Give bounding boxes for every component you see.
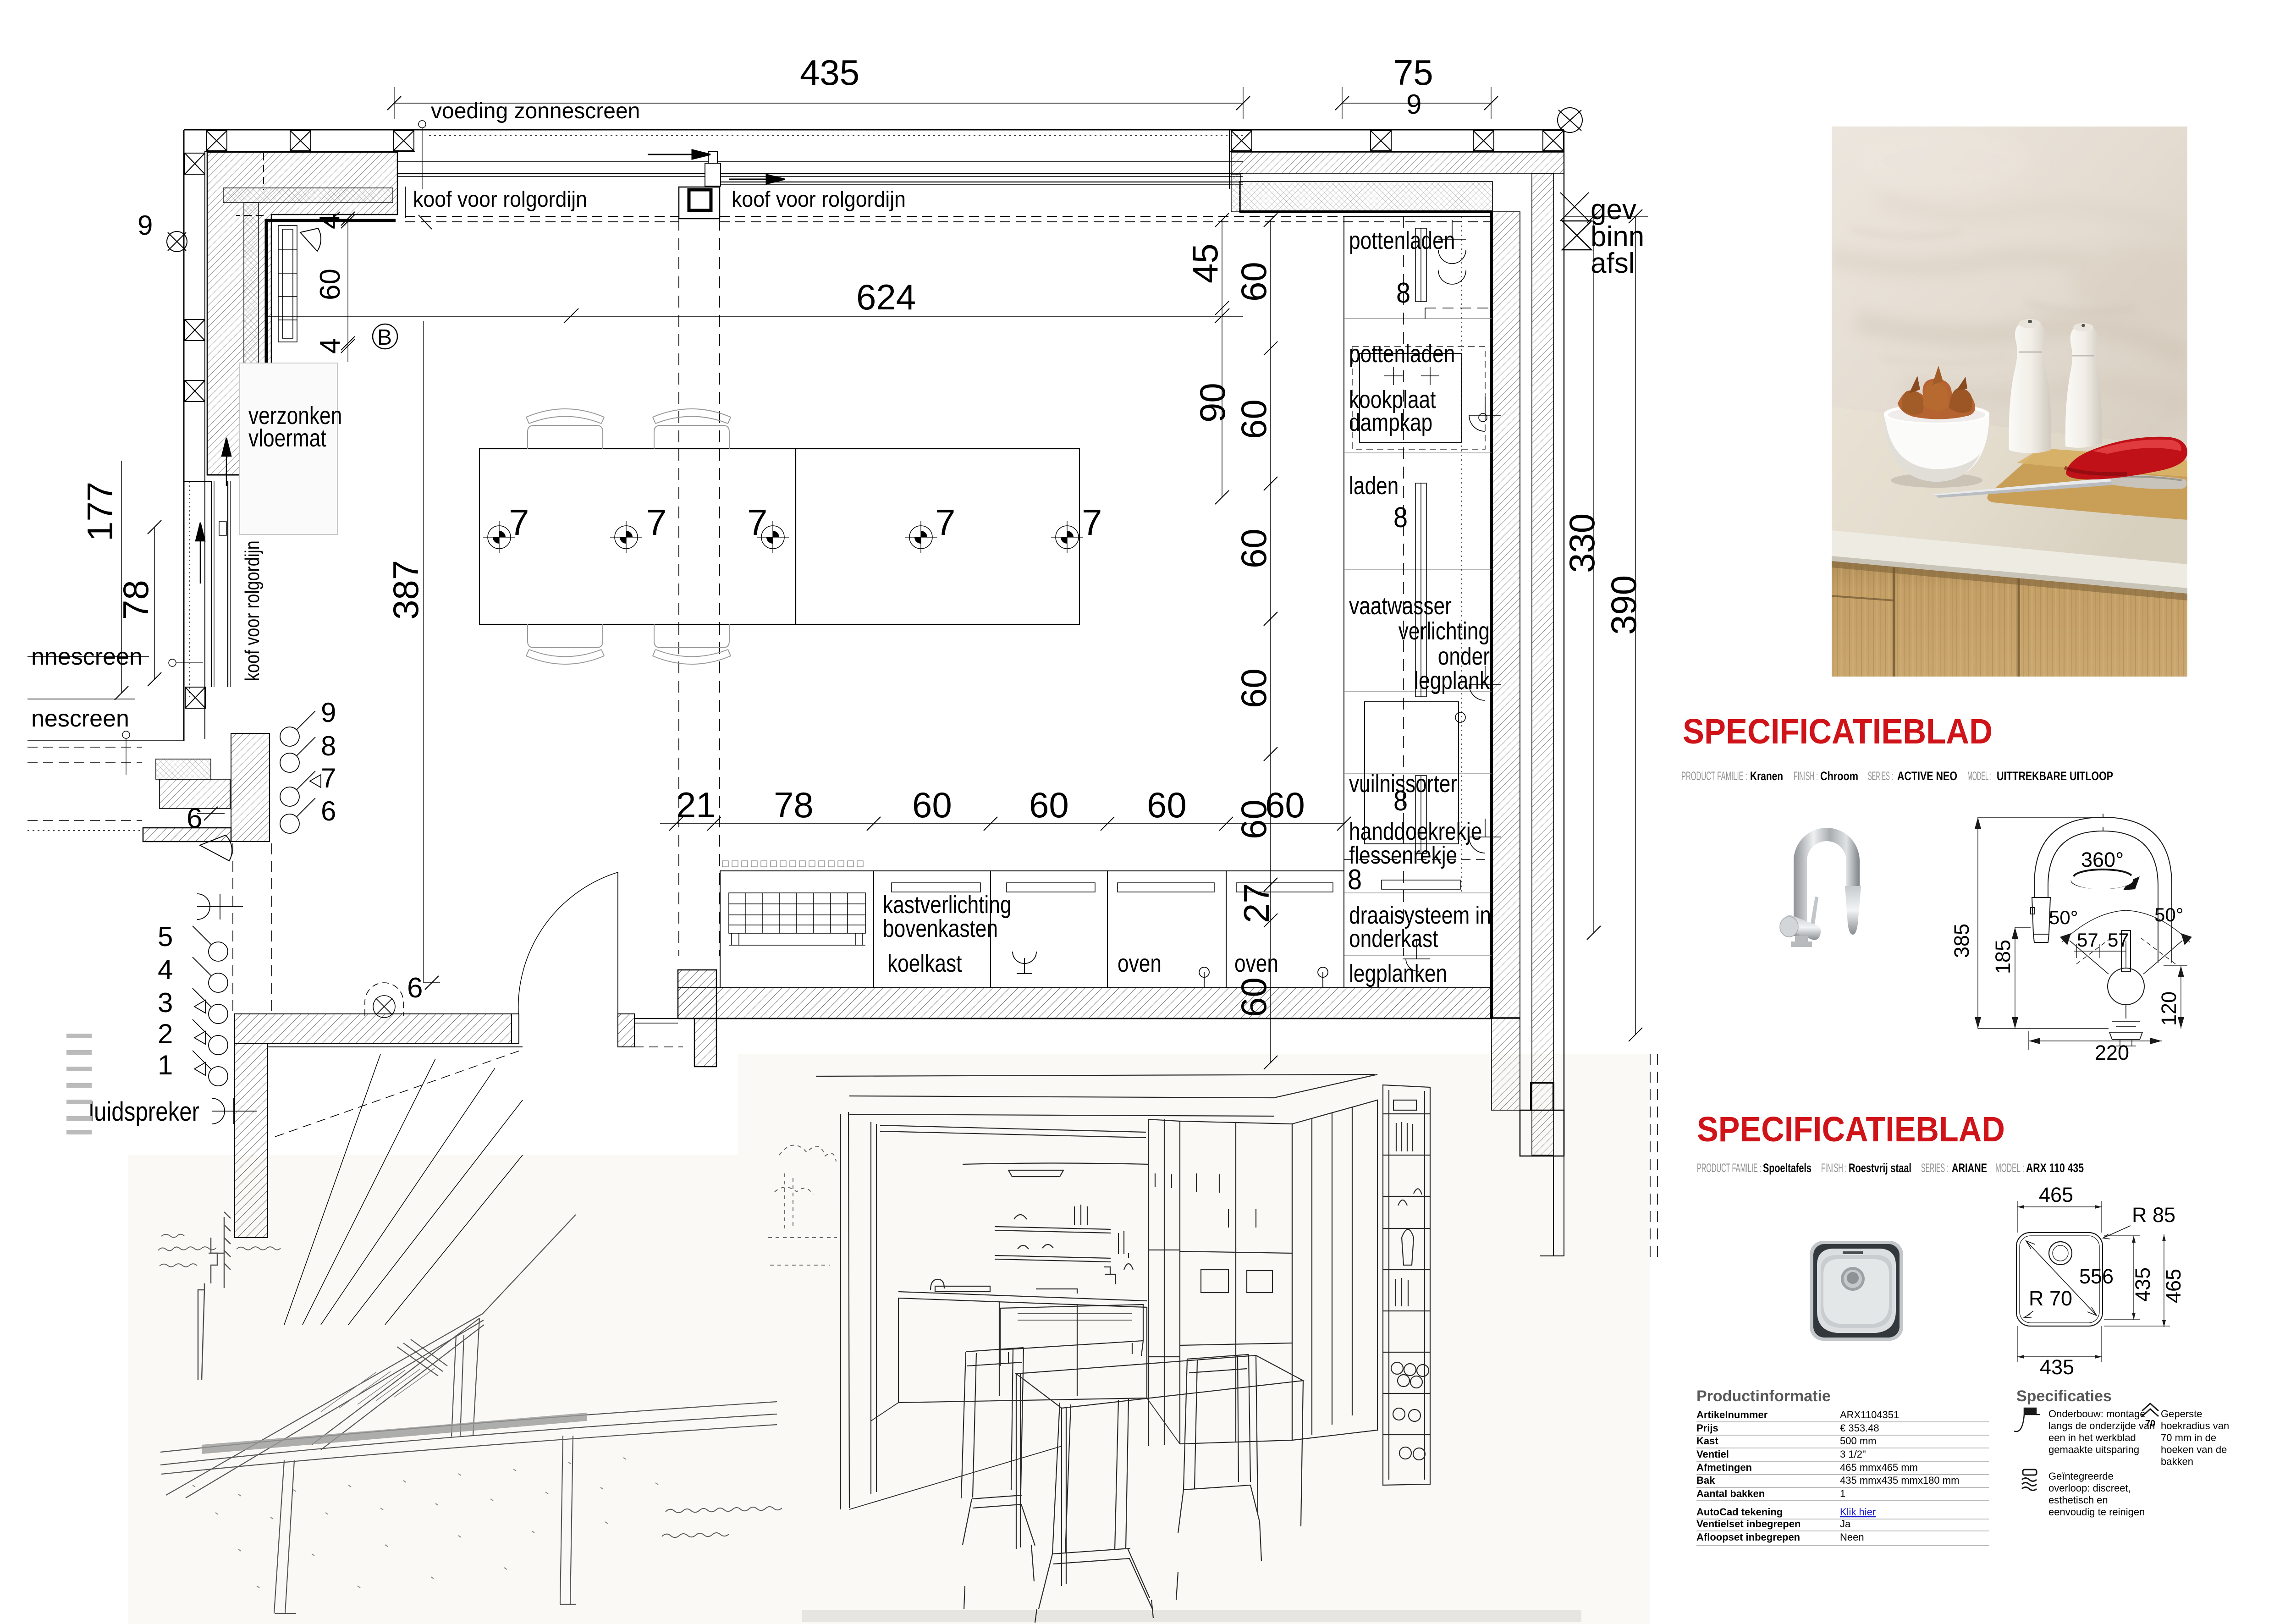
svg-text:330: 330 — [1562, 513, 1602, 573]
svg-text:57: 57 — [2077, 929, 2098, 951]
svg-text:2: 2 — [158, 1018, 173, 1049]
svg-text:Chroom: Chroom — [1820, 769, 1858, 783]
svg-text:1: 1 — [1840, 1488, 1845, 1499]
svg-text:dampkap: dampkap — [1349, 409, 1432, 436]
svg-text:220: 220 — [2095, 1041, 2129, 1064]
svg-text:60: 60 — [912, 785, 952, 825]
svg-text:Roestvrij staal: Roestvrij staal — [1849, 1161, 1911, 1175]
svg-text:SPECIFICATIEBLAD: SPECIFICATIEBLAD — [1697, 1110, 2005, 1149]
svg-text:8: 8 — [1348, 864, 1362, 895]
svg-text:overloop: discreet,: overloop: discreet, — [2048, 1482, 2131, 1494]
svg-text:8: 8 — [1393, 502, 1408, 533]
svg-text:1: 1 — [158, 1050, 173, 1080]
svg-text:legplank: legplank — [1414, 667, 1490, 694]
svg-text:7: 7 — [1082, 502, 1102, 543]
svg-text:3: 3 — [158, 987, 173, 1018]
svg-text:AutoCad tekening: AutoCad tekening — [1696, 1506, 1783, 1518]
svg-text:5: 5 — [158, 921, 173, 952]
svg-text:B: B — [377, 325, 392, 350]
svg-text:120: 120 — [2157, 991, 2180, 1026]
svg-text:pottenladen: pottenladen — [1349, 227, 1455, 254]
svg-text:9: 9 — [1406, 89, 1421, 120]
svg-text:385: 385 — [1950, 924, 1973, 958]
svg-text:60: 60 — [1233, 668, 1274, 708]
svg-text:Neen: Neen — [1840, 1531, 1864, 1543]
svg-text:70: 70 — [2145, 1419, 2155, 1429]
svg-text:7: 7 — [321, 763, 336, 793]
svg-text:ARIANE: ARIANE — [1952, 1161, 1987, 1175]
svg-text:435: 435 — [2040, 1355, 2074, 1379]
svg-text:koof voor rolgordijn: koof voor rolgordijn — [413, 187, 587, 212]
svg-text:90: 90 — [1192, 383, 1233, 423]
svg-text:8: 8 — [1396, 277, 1410, 308]
svg-text:185: 185 — [1991, 940, 2015, 974]
svg-text:465 mmx465 mm: 465 mmx465 mm — [1840, 1462, 1918, 1473]
svg-text:Productinformatie: Productinformatie — [1696, 1387, 1831, 1405]
svg-text:vloermat: vloermat — [248, 424, 326, 452]
svg-text:4: 4 — [314, 338, 346, 354]
svg-text:177: 177 — [80, 482, 120, 541]
svg-text:50°: 50° — [2049, 907, 2078, 928]
svg-text:435: 435 — [800, 52, 859, 93]
svg-text:387: 387 — [385, 560, 426, 620]
svg-text:R 70: R 70 — [2029, 1287, 2072, 1310]
svg-text:koof voor rolgordijn: koof voor rolgordijn — [241, 540, 264, 681]
svg-text:ACTIVE NEO: ACTIVE NEO — [1897, 769, 1957, 783]
svg-text:Artikelnummer: Artikelnummer — [1696, 1409, 1768, 1420]
svg-text:4: 4 — [158, 954, 173, 985]
svg-text:Kast: Kast — [1696, 1435, 1718, 1447]
svg-text:MODEL :: MODEL : — [1967, 769, 1992, 783]
svg-text:PRODUCT FAMILIE :: PRODUCT FAMILIE : — [1697, 1161, 1762, 1175]
svg-text:bovenkasten: bovenkasten — [883, 915, 998, 942]
svg-text:60: 60 — [1233, 262, 1274, 302]
svg-text:8: 8 — [1393, 785, 1408, 816]
svg-text:voeding zonnescreen: voeding zonnescreen — [431, 99, 640, 123]
svg-text:45: 45 — [1185, 243, 1225, 283]
svg-text:70 mm in de: 70 mm in de — [2161, 1432, 2216, 1443]
svg-text:Geperste: Geperste — [2161, 1408, 2202, 1420]
svg-text:500 mm: 500 mm — [1840, 1435, 1876, 1447]
svg-text:hoeken van de: hoeken van de — [2161, 1444, 2227, 1455]
svg-text:afsl: afsl — [1591, 248, 1635, 279]
svg-text:Ventiel: Ventiel — [1696, 1448, 1729, 1460]
svg-text:Spoeltafels: Spoeltafels — [1763, 1161, 1811, 1175]
svg-text:oven: oven — [1118, 950, 1162, 977]
svg-text:SERIES :: SERIES : — [1868, 769, 1893, 783]
svg-text:PRODUCT FAMILIE :: PRODUCT FAMILIE : — [1681, 769, 1747, 783]
svg-text:Onderbouw: montage: Onderbouw: montage — [2048, 1408, 2146, 1420]
svg-text:624: 624 — [856, 277, 916, 317]
svg-text:koelkast: koelkast — [887, 950, 962, 977]
svg-text:556: 556 — [2079, 1265, 2114, 1288]
svg-text:6: 6 — [187, 803, 202, 834]
svg-text:7: 7 — [509, 502, 529, 543]
svg-text:MODEL :: MODEL : — [1995, 1161, 2024, 1175]
svg-text:Specificaties: Specificaties — [2016, 1387, 2112, 1405]
svg-text:60: 60 — [1233, 528, 1274, 568]
svg-text:Prijs: Prijs — [1696, 1422, 1718, 1434]
svg-text:oven: oven — [1234, 950, 1278, 977]
svg-text:€ 353.48: € 353.48 — [1840, 1422, 1879, 1434]
svg-text:ARX1104351: ARX1104351 — [1840, 1409, 1899, 1420]
svg-text:UITTREKBARE UITLOOP: UITTREKBARE UITLOOP — [1997, 769, 2113, 783]
svg-text:Ja: Ja — [1840, 1518, 1851, 1530]
svg-text:ARX 110 435: ARX 110 435 — [2026, 1161, 2084, 1175]
svg-text:27: 27 — [1236, 883, 1277, 923]
svg-text:60: 60 — [1147, 785, 1187, 825]
svg-text:koof voor rolgordijn: koof voor rolgordijn — [732, 187, 906, 212]
svg-text:Klik hier: Klik hier — [1840, 1506, 1876, 1518]
svg-text:pottenladen: pottenladen — [1349, 340, 1455, 368]
svg-text:legplanken: legplanken — [1349, 960, 1447, 987]
svg-text:7: 7 — [935, 502, 956, 543]
svg-text:een in het werkblad: een in het werkblad — [2048, 1432, 2136, 1443]
svg-text:7: 7 — [646, 502, 667, 543]
svg-text:57: 57 — [2108, 929, 2129, 951]
svg-text:60: 60 — [1029, 785, 1069, 825]
svg-text:465: 465 — [2039, 1183, 2073, 1206]
svg-text:9: 9 — [321, 697, 336, 728]
svg-text:50°: 50° — [2154, 904, 2184, 925]
svg-text:78: 78 — [774, 785, 814, 825]
svg-text:nnescreen: nnescreen — [31, 644, 143, 670]
svg-text:3 1/2": 3 1/2" — [1840, 1448, 1866, 1460]
svg-text:390: 390 — [1603, 575, 1644, 635]
svg-text:60: 60 — [1233, 399, 1274, 439]
svg-text:8: 8 — [321, 731, 336, 761]
svg-text:60: 60 — [1265, 785, 1305, 825]
svg-text:Afloopset inbegrepen: Afloopset inbegrepen — [1696, 1531, 1800, 1543]
svg-text:9: 9 — [138, 210, 153, 241]
svg-text:eenvoudig te reinigen: eenvoudig te reinigen — [2048, 1506, 2145, 1518]
svg-text:onder: onder — [1438, 643, 1490, 670]
svg-text:360°: 360° — [2081, 848, 2124, 871]
svg-text:FINISH :: FINISH : — [1794, 769, 1818, 783]
svg-text:7: 7 — [747, 502, 768, 543]
svg-text:Afmetingen: Afmetingen — [1696, 1462, 1752, 1473]
svg-text:FINISH :: FINISH : — [1821, 1161, 1847, 1175]
svg-text:vaatwasser: vaatwasser — [1349, 592, 1452, 620]
svg-text:Ventielset inbegrepen: Ventielset inbegrepen — [1696, 1518, 1800, 1530]
svg-text:laden: laden — [1349, 472, 1399, 500]
svg-text:465: 465 — [2162, 1269, 2185, 1303]
svg-text:luidspreker: luidspreker — [89, 1097, 199, 1127]
svg-text:75: 75 — [1393, 52, 1433, 93]
svg-text:gemaakte uitsparing: gemaakte uitsparing — [2048, 1444, 2139, 1455]
svg-text:flessenrekje: flessenrekje — [1349, 842, 1457, 869]
svg-text:SPECIFICATIEBLAD: SPECIFICATIEBLAD — [1683, 712, 1993, 751]
svg-text:hoekradius van: hoekradius van — [2161, 1420, 2229, 1431]
svg-text:6: 6 — [407, 972, 423, 1004]
svg-text:21: 21 — [676, 785, 716, 825]
svg-text:Aantal bakken: Aantal bakken — [1696, 1488, 1765, 1499]
svg-text:verlichting: verlichting — [1399, 617, 1490, 645]
svg-text:435: 435 — [2131, 1267, 2154, 1302]
svg-text:langs de onderzijde van: langs de onderzijde van — [2048, 1420, 2155, 1431]
svg-text:onderkast: onderkast — [1349, 925, 1438, 952]
svg-text:6: 6 — [321, 796, 336, 826]
svg-text:Geïntegreerde: Geïntegreerde — [2048, 1470, 2114, 1482]
svg-text:Bak: Bak — [1696, 1475, 1715, 1486]
svg-text:esthetisch en: esthetisch en — [2048, 1494, 2108, 1506]
svg-text:435 mmx435 mmx180 mm: 435 mmx435 mmx180 mm — [1840, 1475, 1959, 1486]
svg-text:78: 78 — [116, 580, 156, 620]
svg-text:4: 4 — [314, 214, 346, 229]
svg-text:Kranen: Kranen — [1750, 769, 1783, 783]
svg-text:SERIES :: SERIES : — [1921, 1161, 1949, 1175]
svg-text:R 85: R 85 — [2132, 1203, 2175, 1227]
svg-text:bakken: bakken — [2161, 1456, 2193, 1467]
svg-text:60: 60 — [314, 269, 346, 300]
svg-text:nescreen: nescreen — [31, 705, 129, 732]
